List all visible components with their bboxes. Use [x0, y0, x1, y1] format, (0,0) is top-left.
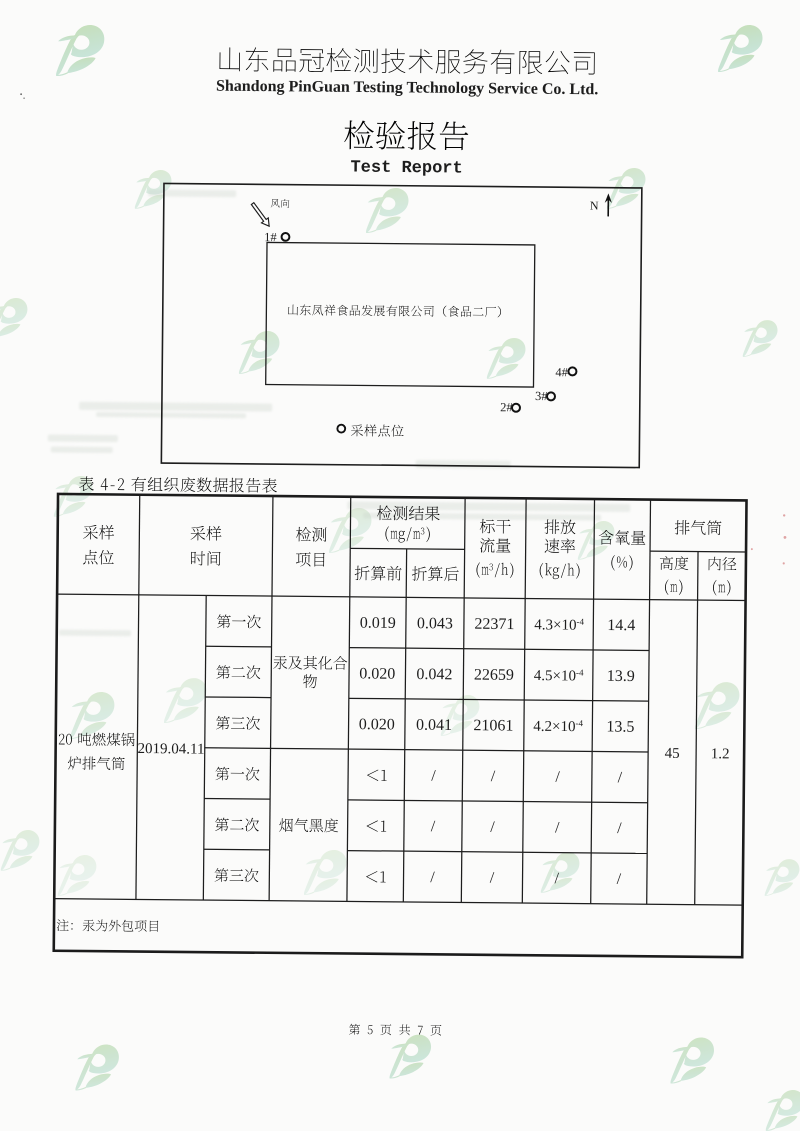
svg-text:/: / — [618, 769, 623, 786]
svg-text:0.041: 0.041 — [416, 717, 452, 734]
svg-text:/: / — [617, 871, 622, 888]
svg-text:22371: 22371 — [474, 616, 514, 633]
svg-text:/: / — [430, 869, 435, 886]
svg-text:/: / — [431, 818, 436, 835]
svg-text:13.5: 13.5 — [606, 718, 634, 735]
svg-text:22659: 22659 — [474, 666, 514, 683]
svg-text:0.020: 0.020 — [359, 716, 395, 733]
svg-text:/: / — [555, 819, 560, 836]
svg-text:2019.04.11: 2019.04.11 — [137, 741, 204, 758]
svg-text:0.043: 0.043 — [417, 615, 453, 632]
svg-text:Shandong PinGuan Testing Techn: Shandong PinGuan Testing Technology Serv… — [216, 78, 598, 99]
svg-text:/: / — [490, 870, 495, 887]
svg-text:N: N — [590, 198, 599, 212]
svg-text:/: / — [491, 768, 496, 785]
svg-text:/: / — [431, 768, 436, 785]
svg-text:1#: 1# — [264, 230, 277, 244]
svg-text:13.9: 13.9 — [607, 668, 635, 685]
svg-text:0.019: 0.019 — [360, 615, 396, 632]
svg-text:14.4: 14.4 — [607, 617, 635, 634]
svg-text:21061: 21061 — [473, 717, 513, 734]
svg-text:/: / — [555, 769, 560, 786]
svg-text:/: / — [554, 870, 559, 887]
svg-text:45: 45 — [665, 746, 680, 762]
svg-text:/: / — [617, 820, 622, 837]
svg-text:Test Report: Test Report — [350, 159, 462, 179]
svg-text:/: / — [490, 819, 495, 836]
svg-text:4#: 4# — [555, 365, 568, 379]
svg-text:0.020: 0.020 — [359, 665, 395, 682]
svg-text:0.042: 0.042 — [416, 666, 452, 683]
svg-text:1.2: 1.2 — [711, 746, 730, 762]
